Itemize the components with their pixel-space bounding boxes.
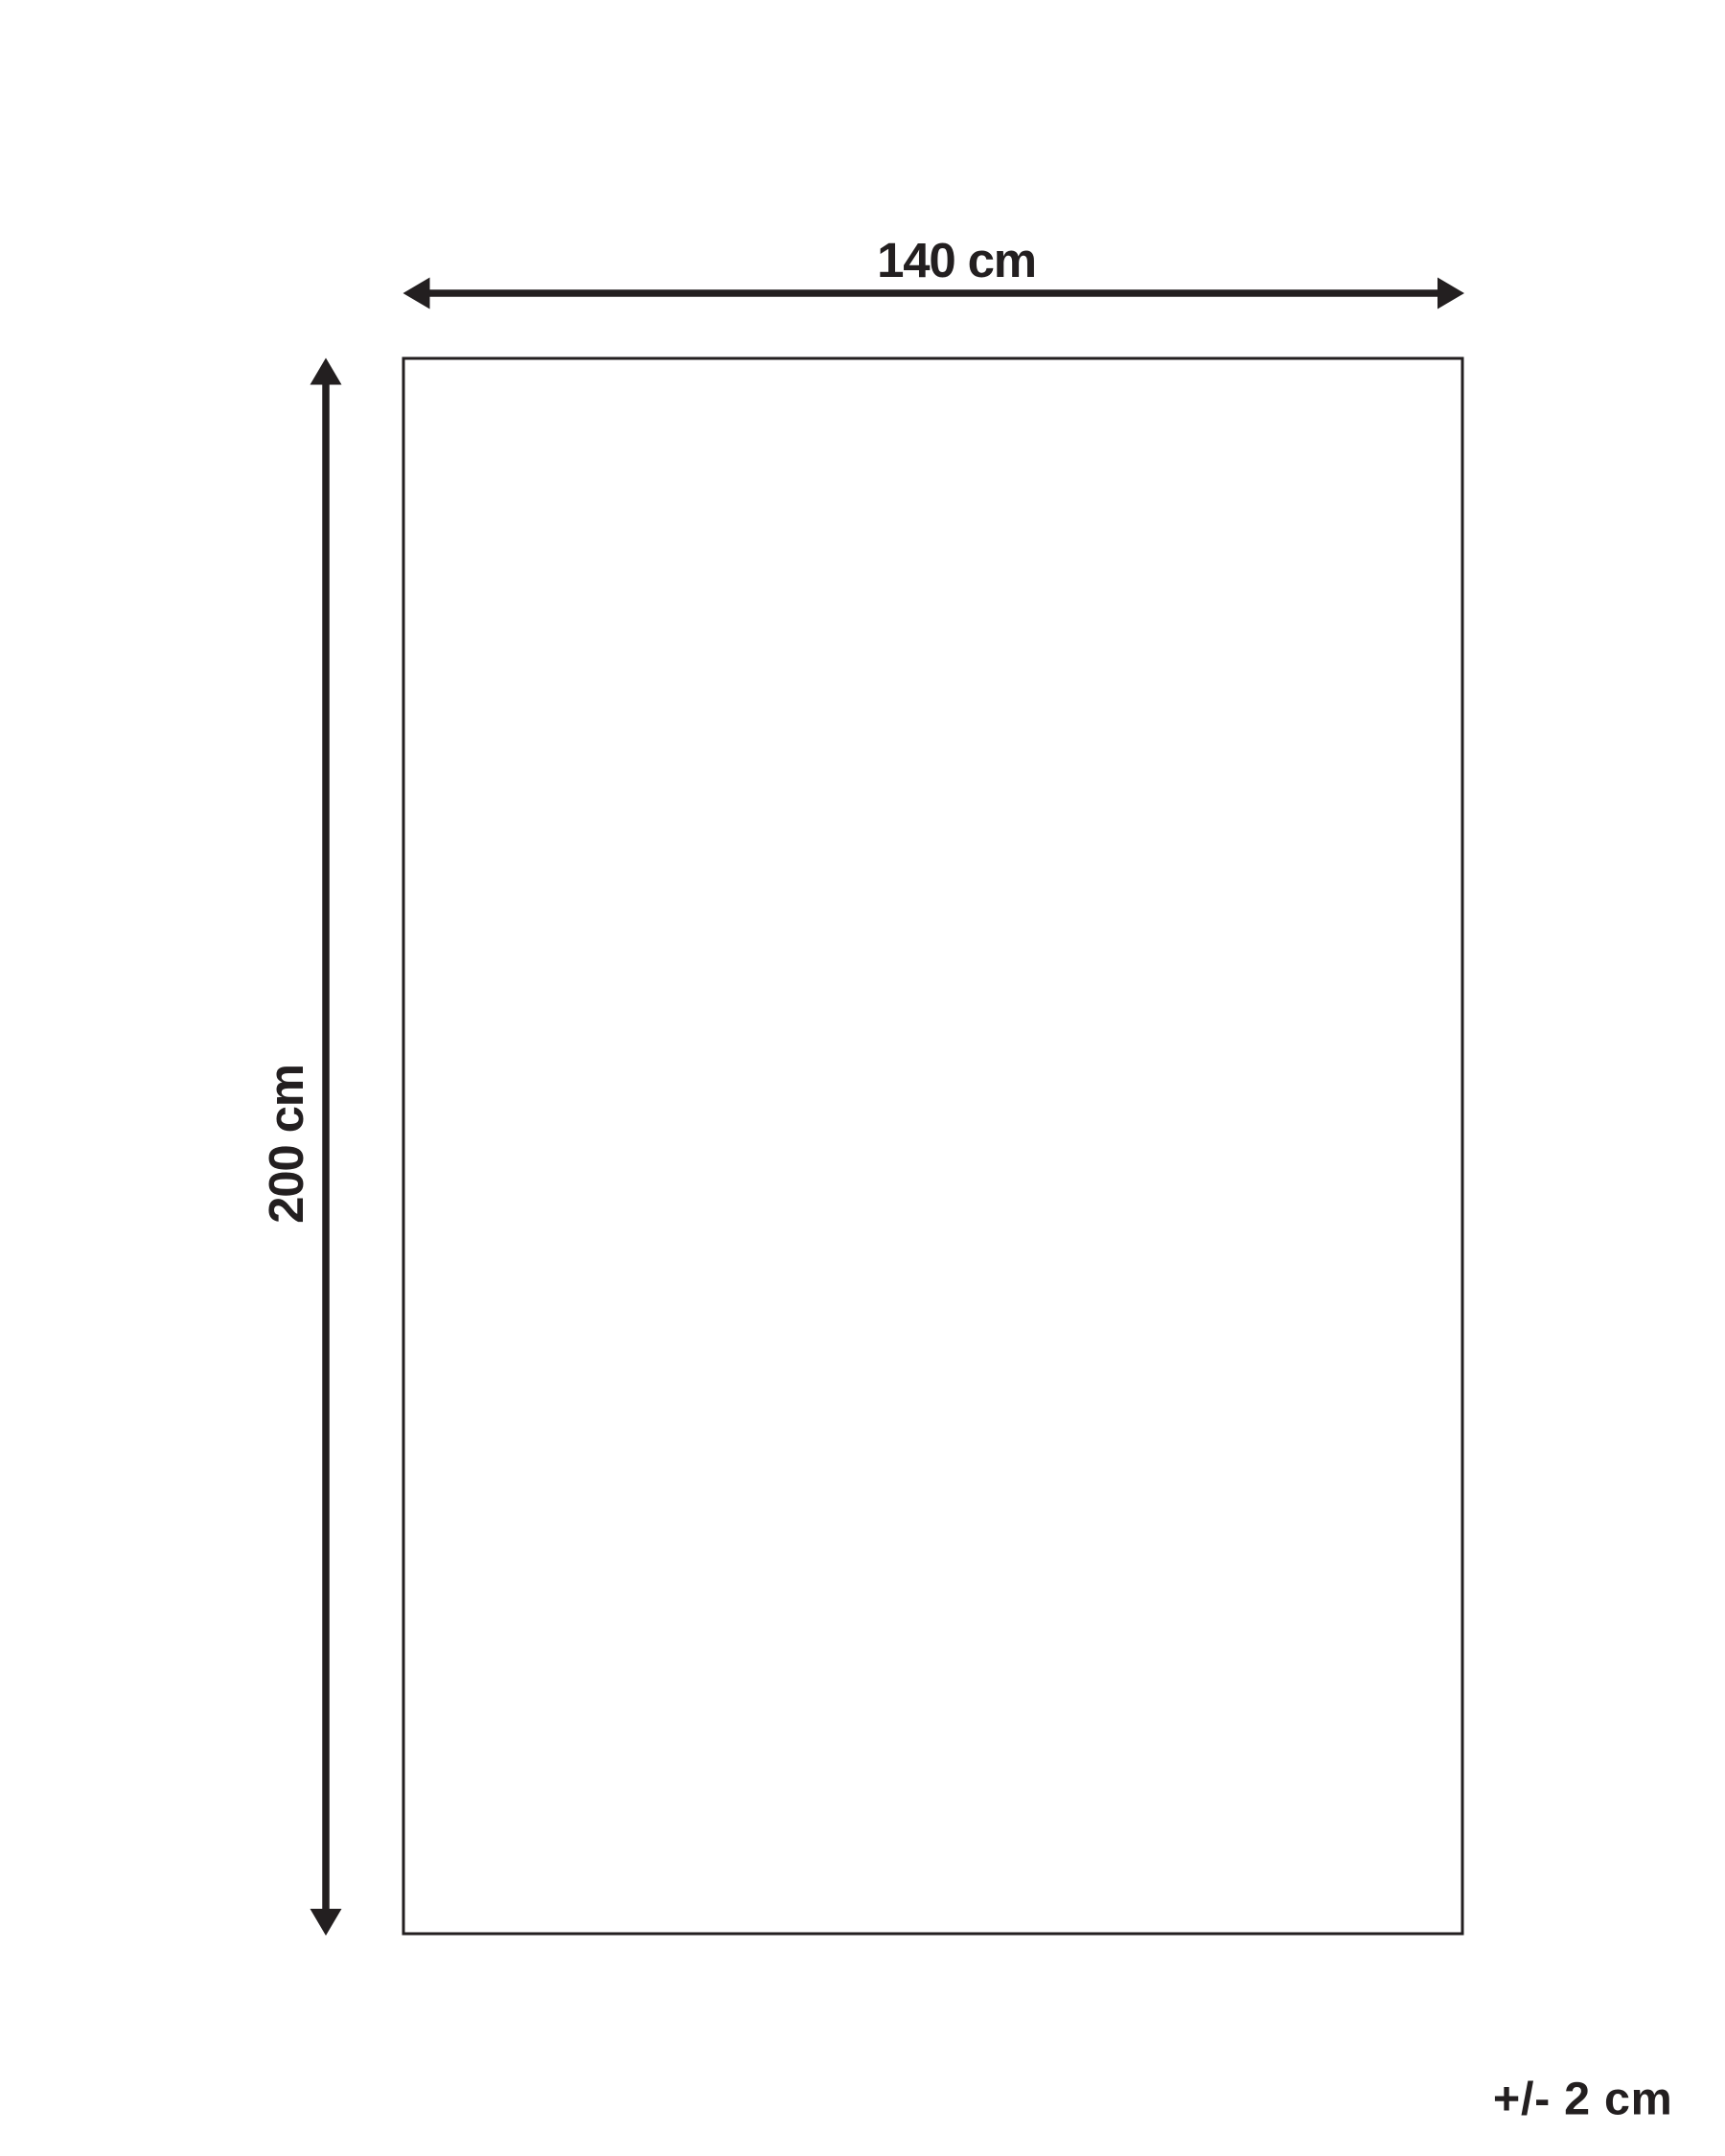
svg-text:200 cm: 200 cm: [259, 1065, 313, 1224]
svg-text:140 cm: 140 cm: [877, 233, 1036, 287]
svg-text:+/- 2 cm: +/- 2 cm: [1493, 2074, 1673, 2125]
